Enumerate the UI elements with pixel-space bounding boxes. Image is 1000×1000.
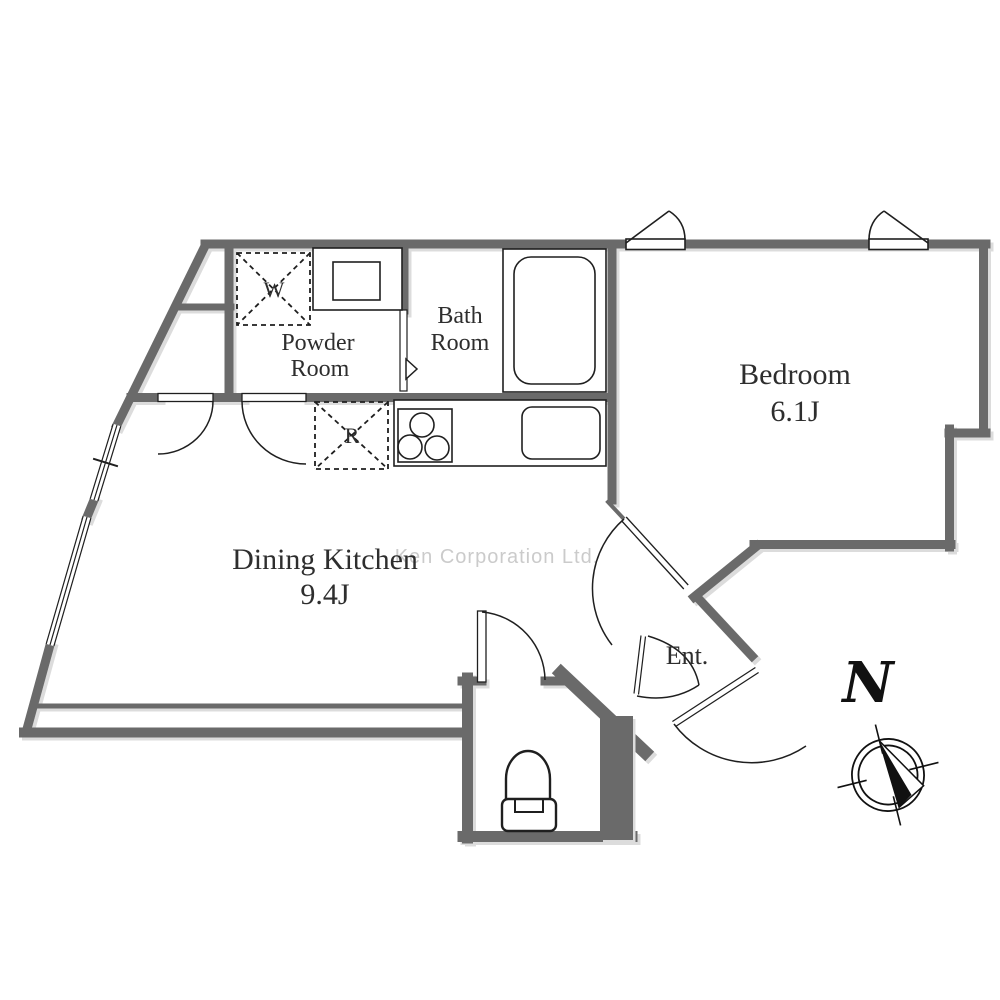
refrigerator-mark-label: R	[345, 423, 360, 448]
wall-left-diagonal-mid	[87, 500, 94, 517]
bedroom-size-label: 6.1J	[770, 395, 820, 428]
doors	[158, 310, 806, 763]
toilet-icon	[502, 751, 556, 831]
powder-room-label-line2: Room	[291, 356, 350, 382]
bath-room-label-line2: Room	[431, 330, 490, 356]
window-left-upper	[90, 424, 121, 501]
powder-room-label-line1: Powder	[281, 330, 354, 356]
door-bath	[400, 310, 417, 391]
bathtub-icon	[503, 249, 606, 392]
kitchen-counter-icon	[394, 400, 606, 466]
left-windows	[46, 424, 121, 646]
washer-mark-label: W	[264, 277, 285, 302]
door-wc	[478, 611, 546, 682]
wall-wc-right-column	[600, 716, 633, 840]
wall-left-diagonal-bottom	[27, 645, 50, 729]
bath-room-label-line1: Bath	[437, 303, 482, 329]
door-entrance	[672, 668, 806, 763]
window-left-lower	[46, 516, 91, 646]
compass-north-label: N	[840, 650, 895, 716]
window-bedroom-left	[626, 211, 685, 250]
watermark-text: Ken Corporation Ltd.	[395, 546, 600, 568]
floor-plan-page: Ken Corporation Ltd.	[0, 0, 1000, 1000]
door-closet	[158, 394, 213, 455]
dining-kitchen-size-label: 9.4J	[300, 578, 350, 611]
entrance-label: Ent.	[666, 641, 709, 670]
door-bedroom	[592, 517, 688, 645]
walls-filled	[600, 716, 633, 840]
vanity-icon	[313, 248, 402, 310]
floor-plan: Ken Corporation Ltd.	[0, 0, 1000, 1000]
door-powder-room	[242, 394, 306, 465]
wall-hall-diagonal	[694, 546, 757, 597]
compass-icon: N	[825, 650, 951, 838]
bedroom-label: Bedroom	[739, 358, 851, 391]
window-bedroom-right	[869, 211, 928, 250]
dining-kitchen-label: Dining Kitchen	[232, 543, 418, 576]
